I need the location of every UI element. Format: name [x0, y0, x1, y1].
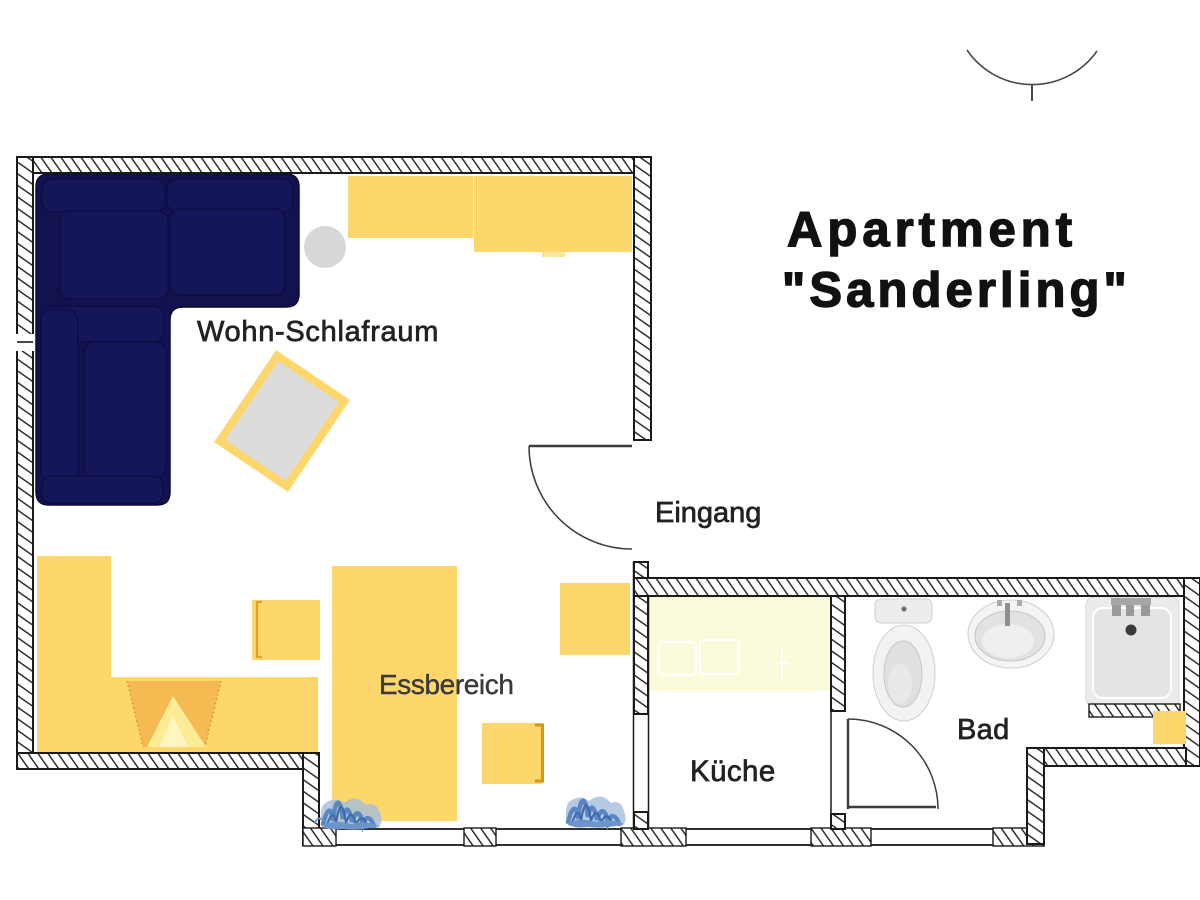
svg-text:"Sanderling": "Sanderling"	[782, 264, 1131, 318]
svg-text:Bad: Bad	[957, 714, 1010, 746]
svg-text:Küche: Küche	[690, 755, 776, 788]
svg-text:Apartment: Apartment	[787, 203, 1077, 257]
svg-text:Essbereich: Essbereich	[379, 669, 514, 700]
svg-text:Wohn-Schlafraum: Wohn-Schlafraum	[197, 316, 439, 348]
svg-text:Eingang: Eingang	[655, 497, 761, 529]
